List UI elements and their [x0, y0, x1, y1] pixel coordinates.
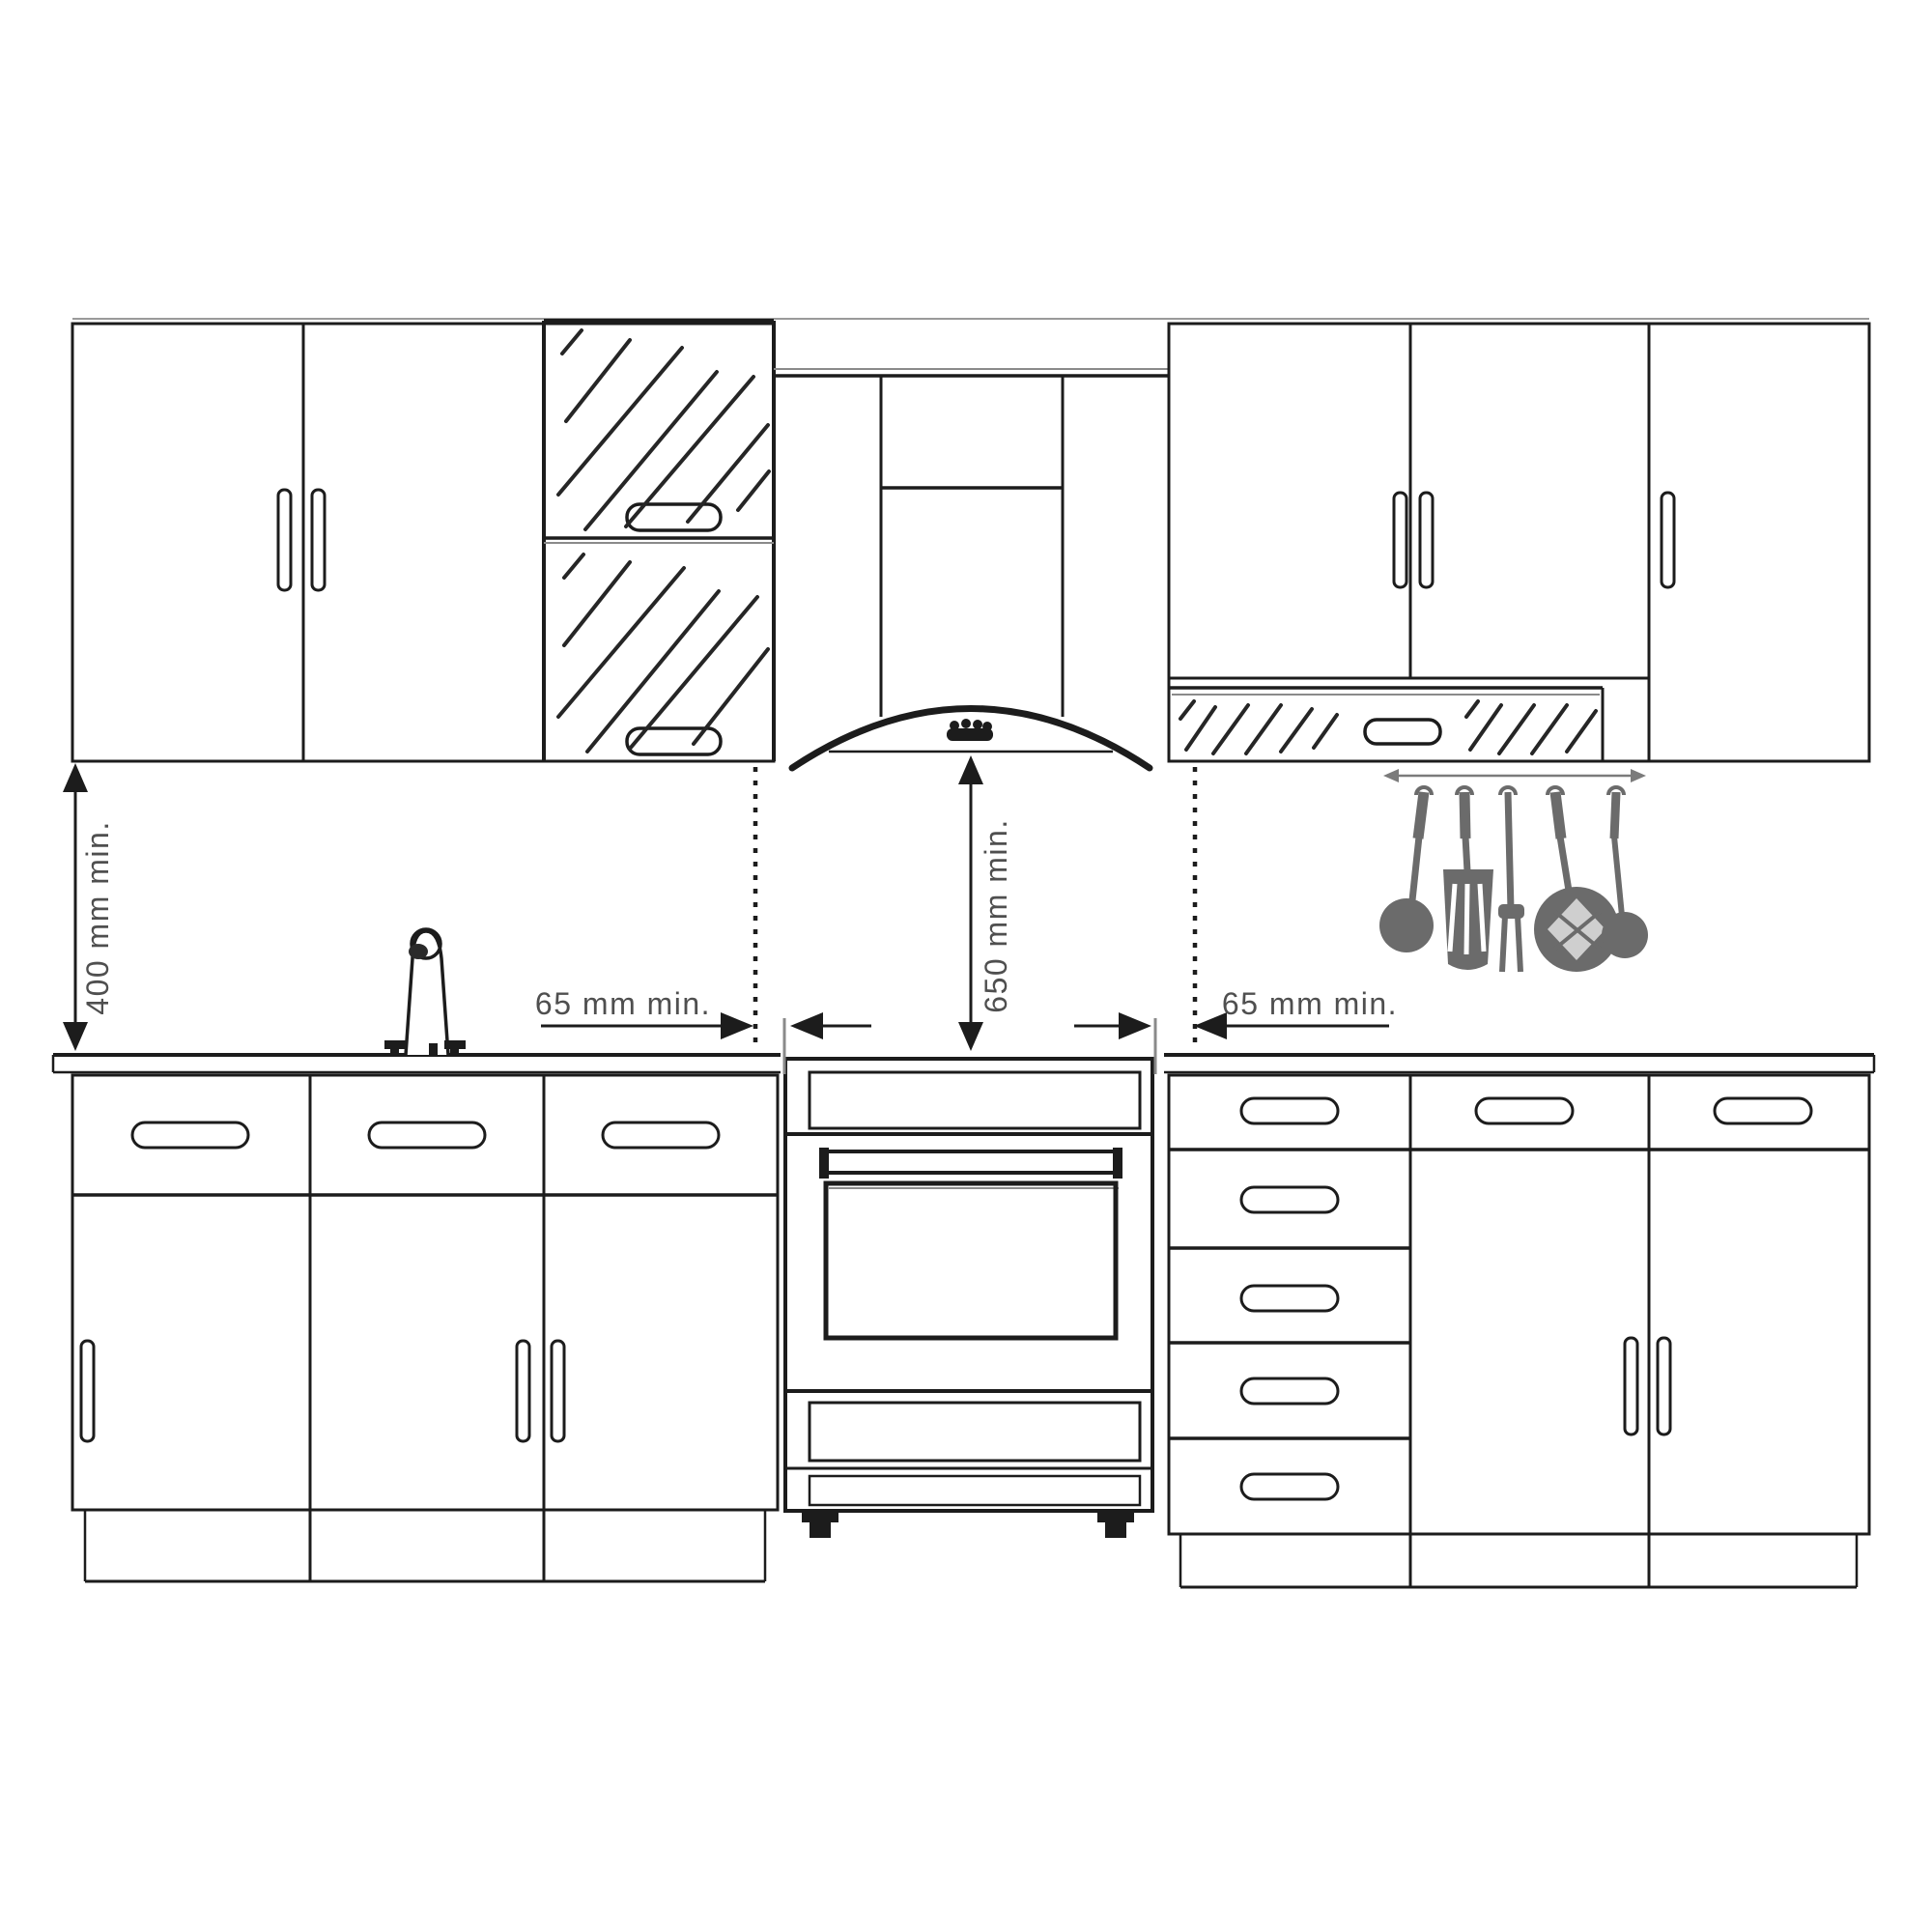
countertop-left — [53, 1055, 781, 1072]
door-handle — [552, 1341, 564, 1441]
door-handle — [1394, 493, 1406, 587]
arrow-left-icon — [790, 1012, 823, 1039]
wall-cabinet-glass — [544, 321, 774, 761]
door-handle — [81, 1341, 94, 1441]
drawer-handle — [1241, 1187, 1338, 1212]
panel-hatch-right — [1466, 701, 1596, 753]
dim-label-400: 400 mm min. — [80, 820, 115, 1014]
small-ladle-icon — [1602, 787, 1648, 958]
faucet-icon — [384, 929, 466, 1057]
drawer-handle — [1476, 1098, 1573, 1123]
under-cabinet-glass-panel — [1169, 688, 1603, 761]
dimension-400mm: 400 mm min. — [63, 763, 115, 1051]
drawer-handle — [1241, 1378, 1338, 1404]
spatula-icon — [1443, 787, 1493, 970]
countertop-right — [1164, 1055, 1874, 1072]
diagram-canvas: 400 mm min. 650 mm min. 65 mm min. 65 mm… — [0, 0, 1932, 1932]
door-handle — [1420, 493, 1433, 587]
dim-label-65-right: 65 mm min. — [1222, 986, 1398, 1021]
arrow-right-icon — [1119, 1012, 1151, 1039]
dimension-650mm: 650 mm min. — [958, 755, 1013, 1051]
oven-handle — [821, 1151, 1121, 1173]
door-handle — [312, 490, 325, 590]
dim-label-65-left: 65 mm min. — [535, 986, 711, 1021]
range-hood — [774, 369, 1169, 768]
door-handle — [517, 1341, 529, 1441]
door-handle — [1658, 1338, 1670, 1435]
ladle-icon — [1379, 787, 1434, 952]
storage-drawer — [810, 1403, 1140, 1461]
door-handle — [1625, 1338, 1637, 1435]
base-cabinet-right — [1169, 1075, 1869, 1587]
kitchen-installation-diagram: 400 mm min. 650 mm min. 65 mm min. 65 mm… — [0, 0, 1932, 1932]
drawer-handle — [603, 1122, 719, 1148]
base-cabinet-left — [72, 1075, 778, 1581]
oven-door — [819, 1148, 1122, 1338]
arrow-up-icon — [958, 755, 983, 784]
plinth-right — [1180, 1534, 1857, 1587]
drawer-handle — [1241, 1098, 1338, 1123]
arrow-up-icon — [63, 763, 88, 792]
panel-handle — [1365, 720, 1440, 744]
dimension-65mm-right: 65 mm min. — [1074, 767, 1398, 1074]
rail-arrow-left-icon — [1383, 769, 1399, 782]
drawer-handle — [369, 1122, 485, 1148]
hood-controls — [947, 719, 993, 741]
drawer-handle — [1241, 1286, 1338, 1311]
wall-cabinet-right — [1169, 324, 1869, 761]
glass-hatch-upper — [558, 330, 769, 529]
fork-icon — [1498, 787, 1524, 972]
arrow-down-icon — [63, 1022, 88, 1051]
stove-control-panel — [810, 1072, 1140, 1128]
dim-label-650: 650 mm min. — [979, 818, 1013, 1012]
drawer-handle — [132, 1122, 248, 1148]
stove — [785, 1059, 1152, 1538]
arrow-right-icon — [721, 1012, 753, 1039]
rail-arrow-right-icon — [1631, 769, 1646, 782]
panel-hatch-left — [1180, 701, 1337, 753]
door-handle — [278, 490, 291, 590]
door-handle — [1662, 493, 1674, 587]
dimension-65mm-left: 65 mm min. — [535, 767, 871, 1074]
drawer-handle — [1715, 1098, 1811, 1123]
glass-door-handle — [627, 728, 721, 754]
utensil-rail — [1379, 769, 1648, 972]
plinth-left — [85, 1510, 765, 1581]
hood-chimney — [881, 377, 1063, 717]
stove-feet — [802, 1511, 1134, 1538]
glass-hatch-lower — [558, 554, 768, 752]
oven-window — [826, 1183, 1116, 1338]
drawer-handle — [1241, 1474, 1338, 1499]
arrow-down-icon — [958, 1022, 983, 1051]
